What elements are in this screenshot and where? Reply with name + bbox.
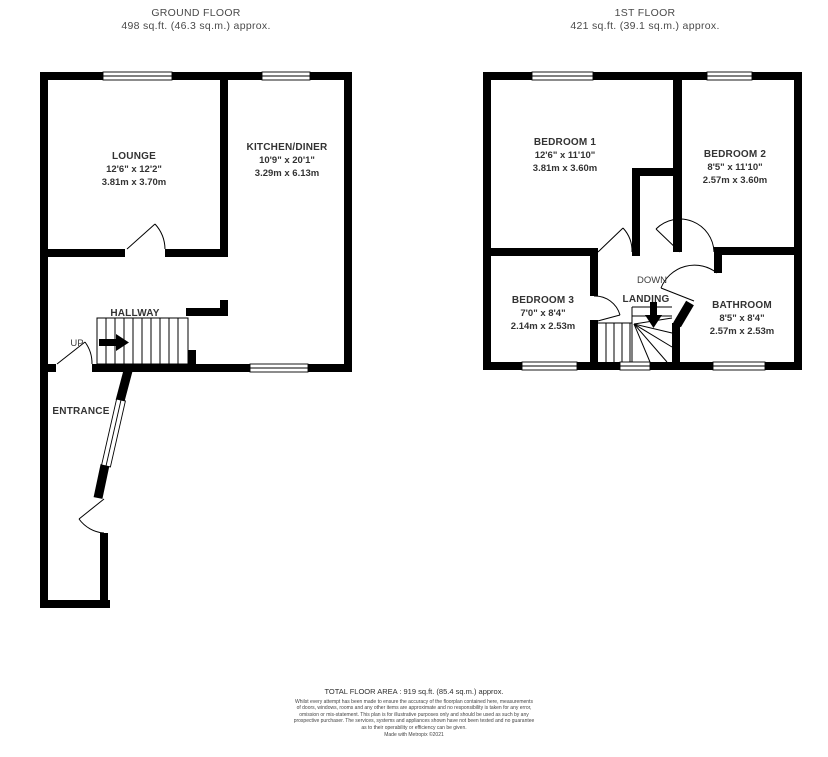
lounge-label: LOUNGE [112,151,156,162]
ground-floor-stairs [97,318,188,364]
footer-disclaimer: TOTAL FLOOR AREA : 919 sq.ft. (85.4 sq.m… [0,687,828,738]
entrance-front-door [79,499,104,533]
entrance-label: ENTRANCE [52,406,109,417]
ground-floor-windows [102,72,310,467]
kitchen-bottom-window [250,364,308,372]
bedroom3-door [594,296,620,322]
first-floor-title: 1ST FLOOR [615,7,676,19]
bathroom-window [713,362,765,370]
up-label: UP [70,338,83,349]
lounge-window [103,72,172,80]
ground-floor-area: 498 sq.ft. (46.3 sq.m.) approx. [121,20,270,32]
first-floor-stairs [598,302,672,362]
bedroom3-dims-metric: 2.14m x 2.53m [511,321,575,332]
bathroom-diagonal-wall [677,303,690,325]
bedroom3-label: BEDROOM 3 [512,295,575,306]
ground-floor-labels: LOUNGE 12'6" x 12'2" 3.81m x 3.70m KITCH… [52,142,328,417]
bedroom1-door [598,228,632,252]
bathroom-label: BATHROOM [712,300,772,311]
bathroom-dims-imperial: 8'5" x 8'4" [719,313,764,324]
bedroom3-window [522,362,577,370]
bedroom2-dims-metric: 2.57m x 3.60m [703,175,767,186]
lounge-door [127,224,165,249]
bedroom1-dims-metric: 3.81m x 3.60m [533,163,597,174]
kitchen-dims-metric: 3.29m x 6.13m [255,168,319,179]
bedroom2-window [707,72,752,80]
disclaimer-line: as to their operability or efficiency ca… [0,725,828,731]
bedroom2-dims-imperial: 8'5" x 11'10" [707,162,762,173]
ground-floor-title: GROUND FLOOR [151,7,240,19]
metropix-credit: Made with Metropix ©2021 [0,732,828,738]
bedroom2-label: BEDROOM 2 [704,149,767,160]
ground-floor-doors [57,224,165,533]
bedroom2-door [656,219,714,252]
ground-floor-plan: GROUND FLOOR 498 sq.ft. (46.3 sq.m.) app… [40,7,352,608]
bedroom1-window [532,72,593,80]
lounge-dims-metric: 3.81m x 3.70m [102,177,166,188]
bathroom-dims-metric: 2.57m x 2.53m [710,326,774,337]
landing-window [620,362,650,370]
landing-label: LANDING [623,294,670,305]
kitchen-top-window [262,72,310,80]
first-floor-plan: 1ST FLOOR 421 sq.ft. (39.1 sq.m.) approx… [483,7,802,370]
kitchen-dims-imperial: 10'9" x 20'1" [259,155,315,166]
bedroom3-dims-imperial: 7'0" x 8'4" [520,308,565,319]
lounge-dims-imperial: 12'6" x 12'2" [106,164,162,175]
kitchen-label: KITCHEN/DINER [247,142,329,153]
first-floor-area: 421 sq.ft. (39.1 sq.m.) approx. [570,20,719,32]
bedroom1-label: BEDROOM 1 [534,137,597,148]
down-label: DOWN [637,275,667,286]
total-floor-area: TOTAL FLOOR AREA : 919 sq.ft. (85.4 sq.m… [0,687,828,696]
floorplan-canvas: GROUND FLOOR 498 sq.ft. (46.3 sq.m.) app… [0,0,828,757]
down-arrow-icon [645,302,662,328]
hallway-label: HALLWAY [110,308,159,319]
bedroom1-dims-imperial: 12'6" x 11'10" [535,150,596,161]
